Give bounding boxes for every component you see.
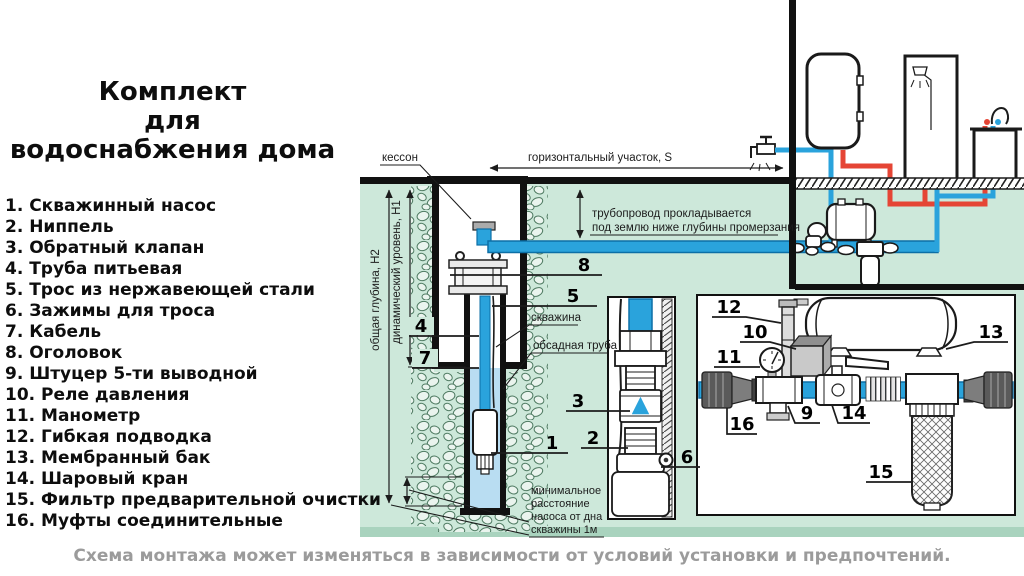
boiler [807,54,863,148]
dynamic-level-label: динамический уровень, H1 [391,200,403,344]
legend-item-9: 9. Штуцер 5-ти выводной [5,364,375,385]
legend-item-13: 13. Мембранный бак [5,448,375,469]
legend-item-1: 1. Скважинный насос [5,196,375,217]
title-line1: Комплект [0,78,345,107]
min-distance-line4: скважины 1м [531,524,597,536]
pre-filter [906,374,958,510]
min-distance-line3: насоса от дна [531,511,603,523]
callout-15: 15 [868,462,893,483]
pipe-note-line2: под землю ниже глубины промерзания [592,222,800,234]
shower-cabin [905,56,957,182]
legend-item-5: 5. Трос из нержавеющей стали [5,280,375,301]
hot-handle-dot [984,119,990,125]
pipe-note-line1: трубопровод прокладывается [592,208,751,220]
callout-14: 14 [841,403,866,424]
callout-2: 2 [587,428,600,449]
horizontal-section-label: горизонтальный участок, S [528,152,672,164]
well-label: скважина [531,312,582,324]
ground-surface-left [360,177,427,184]
title-line2: для [0,107,345,136]
legend-item-8: 8. Оголовок [5,343,375,364]
drinking-pipe [480,296,490,414]
legend-item-14: 14. Шаровый кран [5,469,375,490]
page-title: Комплект для водоснабжения дома [0,78,345,165]
legend-item-6: 6. Зажимы для троса [5,301,375,322]
legend-item-7: 7. Кабель [5,322,375,343]
callout-12: 12 [716,297,741,318]
legend-item-15: 15. Фильтр предварительной очистки [5,490,375,511]
callout-8: 8 [578,255,591,276]
legend-item-3: 3. Обратный клапан [5,238,375,259]
callout-7: 7 [419,348,432,369]
caption: Схема монтажа может изменяться в зависим… [0,546,1024,566]
cold-handle-dot [995,119,1001,125]
legend-item-2: 2. Ниппель [5,217,375,238]
callout-5: 5 [567,286,580,307]
corrugated-coupling [866,377,900,401]
sink [970,108,1022,182]
basement-filter [857,242,883,286]
check-valve [620,390,661,422]
callout-13: 13 [978,322,1003,343]
well-shaft [460,293,510,515]
legend-item-16: 16. Муфты соединительные [5,511,375,532]
callout-3: 3 [572,391,585,412]
outdoor-faucet-icon [750,137,775,171]
min-distance-line2: расстояние [531,498,590,510]
min-distance-line1: минимальное [531,485,601,497]
kesson-label: кессон [382,152,418,164]
title-line3: водоснабжения дома [0,136,345,165]
ground-surface-right [528,177,790,184]
legend-item-4: 4. Труба питьевая [5,259,375,280]
pressure-relay [791,336,831,376]
house-wall [789,0,796,289]
callout-11: 11 [716,347,741,368]
pump-cable [493,296,494,408]
pump-top [612,472,669,516]
callout-16: 16 [729,414,754,435]
nipple [625,428,656,454]
legend-item-10: 10. Реле давления [5,385,375,406]
legend-item-11: 11. Манометр [5,406,375,427]
legend-item-12: 12. Гибкая подводка [5,427,375,448]
callout-4: 4 [415,316,428,337]
house-floor-hatch [796,178,1024,189]
callout-1: 1 [546,433,559,454]
callout-6: 6 [681,447,694,468]
basement-floor-line [795,284,1024,290]
legend-list: 1. Скважинный насос 2. Ниппель 3. Обратн… [5,196,375,532]
callout-9: 9 [801,403,814,424]
borehole-pump [473,410,497,474]
infographic-page: кессон горизонтальный участок, S трубопр… [0,0,1024,576]
pump-detail-inset [608,297,675,519]
callout-10: 10 [742,322,767,343]
shower-head-icon [913,67,927,75]
kesson-lid [427,176,528,184]
casing-label: обсадная труба [533,340,618,352]
